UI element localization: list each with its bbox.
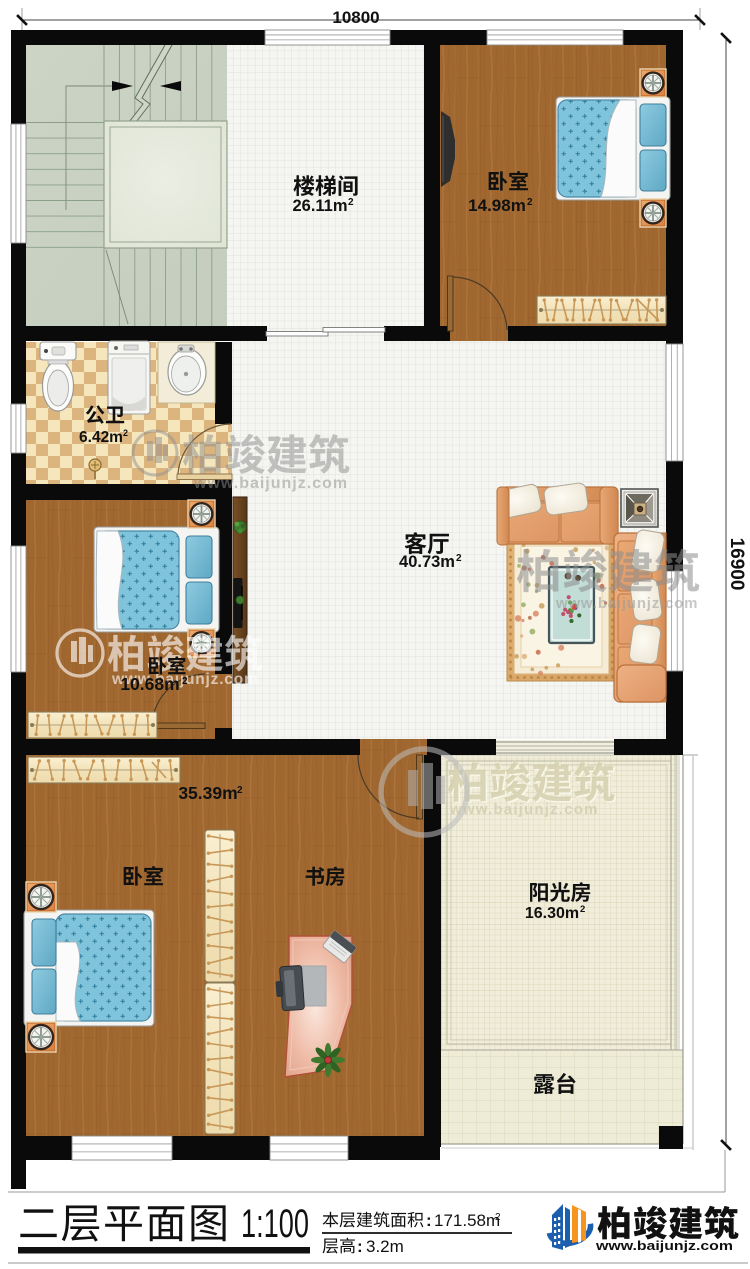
svg-text:2: 2 xyxy=(123,428,128,438)
svg-text:www.baijunjz.com: www.baijunjz.com xyxy=(595,1238,733,1253)
svg-text:16900: 16900 xyxy=(726,538,747,591)
svg-text:2: 2 xyxy=(580,904,585,915)
svg-text:2: 2 xyxy=(456,553,462,564)
svg-text:10.68m: 10.68m xyxy=(120,674,179,694)
svg-text:2: 2 xyxy=(348,197,354,208)
svg-text:10800: 10800 xyxy=(332,8,379,27)
svg-text:171.58m: 171.58m xyxy=(434,1211,500,1230)
svg-text:26.11m: 26.11m xyxy=(292,197,347,215)
svg-text:40.73m: 40.73m xyxy=(399,553,455,571)
svg-text:2: 2 xyxy=(182,676,188,687)
svg-text:www.baijunjz.com: www.baijunjz.com xyxy=(555,595,698,612)
svg-text:14.98m: 14.98m xyxy=(468,196,526,215)
svg-text::: : xyxy=(426,1211,432,1230)
svg-text:35.39m: 35.39m xyxy=(178,783,237,803)
svg-text:www.baijunjz.com: www.baijunjz.com xyxy=(193,475,348,492)
svg-text:2: 2 xyxy=(495,1212,501,1223)
svg-text:1:100: 1:100 xyxy=(241,1202,309,1246)
svg-text:16.30m: 16.30m xyxy=(525,905,579,922)
svg-text:3.2m: 3.2m xyxy=(366,1237,404,1256)
svg-text:2: 2 xyxy=(237,785,243,796)
svg-text:6.42m: 6.42m xyxy=(79,429,123,446)
svg-text::: : xyxy=(357,1237,363,1256)
svg-text:www.baijunjz.com: www.baijunjz.com xyxy=(449,801,599,818)
svg-text:2: 2 xyxy=(527,197,533,208)
